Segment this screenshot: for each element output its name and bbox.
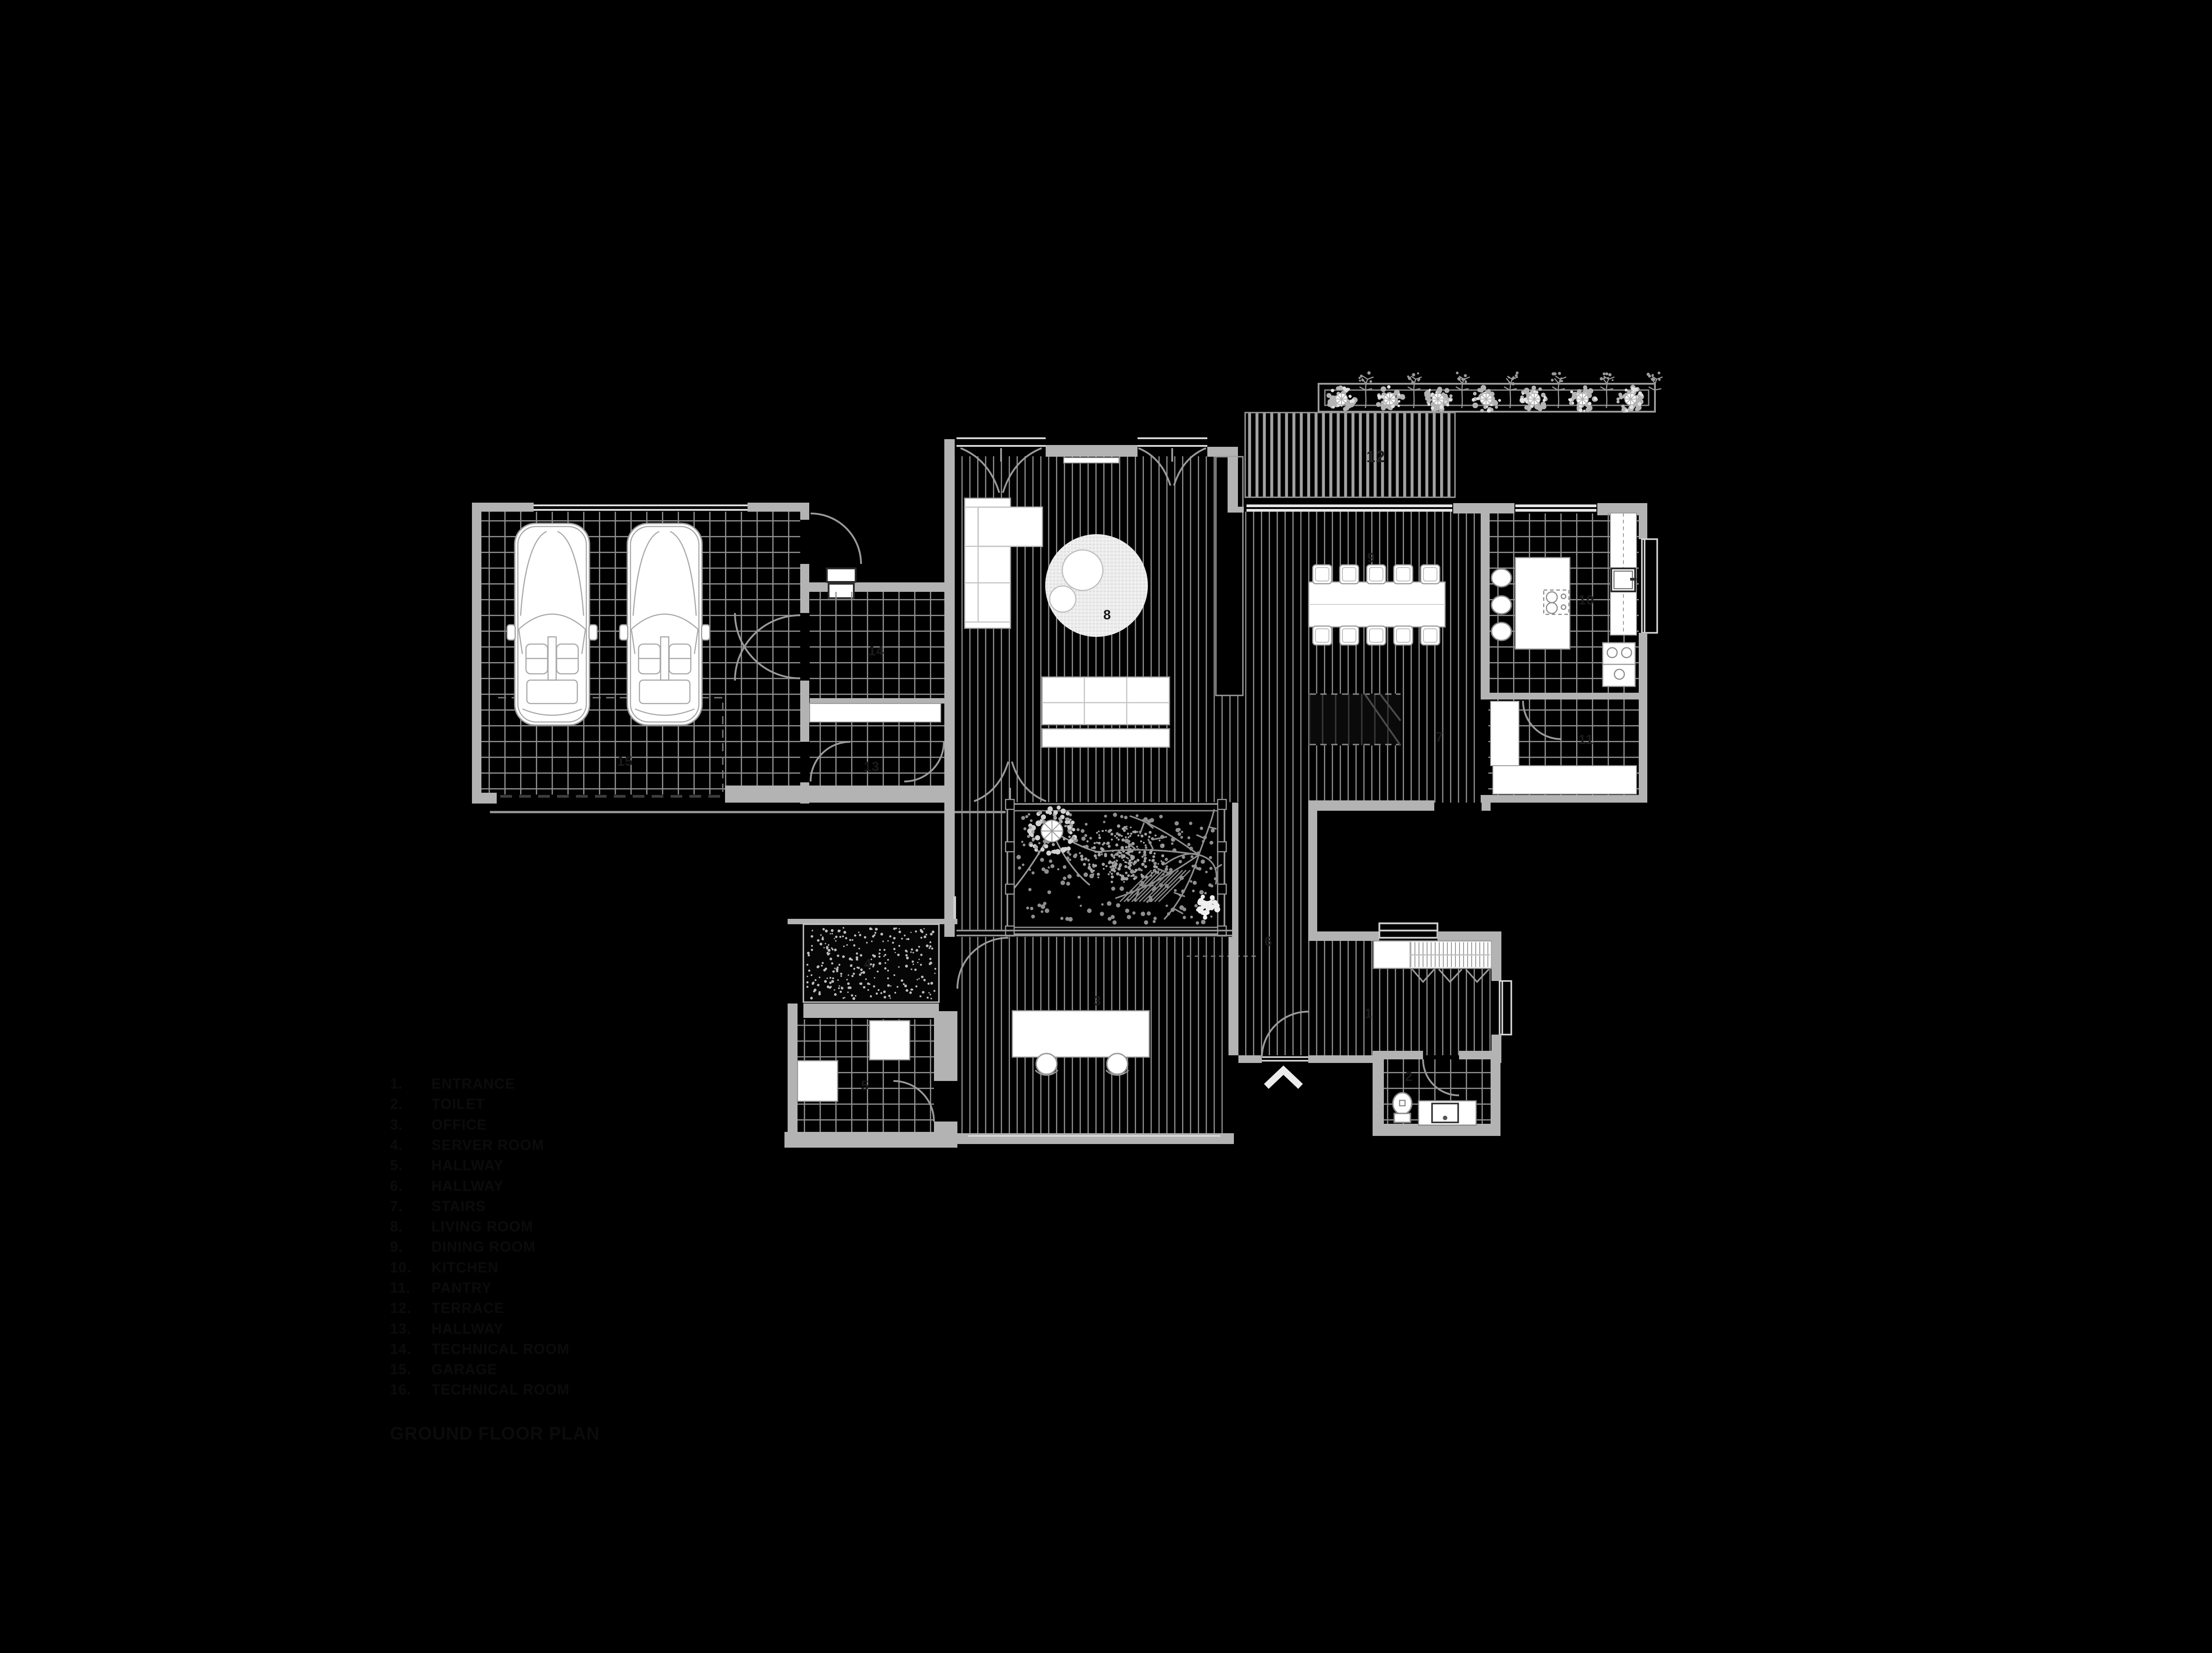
svg-text:7: 7 bbox=[1436, 730, 1444, 745]
svg-text:1.: 1. bbox=[390, 1076, 403, 1092]
svg-text:10: 10 bbox=[1578, 593, 1594, 608]
svg-text:4.: 4. bbox=[390, 1137, 403, 1153]
svg-text:5: 5 bbox=[861, 1078, 869, 1093]
svg-text:HALLWAY: HALLWAY bbox=[431, 1157, 504, 1173]
svg-text:GROUND FLOOR PLAN: GROUND FLOOR PLAN bbox=[390, 1424, 600, 1444]
svg-text:10.: 10. bbox=[390, 1259, 411, 1276]
svg-text:13.: 13. bbox=[390, 1321, 411, 1337]
svg-text:3.: 3. bbox=[390, 1117, 403, 1133]
svg-text:8.: 8. bbox=[390, 1218, 403, 1235]
svg-text:HALLWAY: HALLWAY bbox=[431, 1178, 504, 1194]
svg-text:6.: 6. bbox=[390, 1178, 403, 1194]
svg-text:2: 2 bbox=[1405, 1069, 1413, 1084]
svg-text:3: 3 bbox=[1093, 994, 1101, 1008]
svg-text:16.: 16. bbox=[390, 1381, 411, 1398]
svg-text:9: 9 bbox=[1367, 550, 1375, 565]
svg-text:11.: 11. bbox=[390, 1280, 411, 1296]
svg-text:7.: 7. bbox=[390, 1198, 403, 1214]
svg-text:5.: 5. bbox=[390, 1157, 403, 1173]
svg-text:GARAGE: GARAGE bbox=[431, 1361, 497, 1377]
svg-text:4: 4 bbox=[864, 957, 872, 972]
svg-text:ENTRANCE: ENTRANCE bbox=[431, 1076, 515, 1092]
svg-text:STAIRS: STAIRS bbox=[431, 1198, 486, 1214]
svg-text:1: 1 bbox=[1364, 1006, 1373, 1021]
svg-text:14.: 14. bbox=[390, 1341, 411, 1357]
svg-text:12: 12 bbox=[1366, 447, 1385, 466]
svg-text:6: 6 bbox=[1265, 934, 1273, 949]
svg-text:12.: 12. bbox=[390, 1300, 411, 1316]
svg-text:TECHNICAL ROOM: TECHNICAL ROOM bbox=[431, 1341, 570, 1357]
svg-text:DINING ROOM: DINING ROOM bbox=[431, 1239, 535, 1255]
svg-text:13: 13 bbox=[864, 759, 879, 774]
svg-text:HALLWAY: HALLWAY bbox=[431, 1321, 504, 1337]
svg-text:15: 15 bbox=[617, 754, 633, 769]
svg-text:2.: 2. bbox=[390, 1096, 403, 1112]
svg-text:14: 14 bbox=[868, 644, 884, 658]
svg-text:8: 8 bbox=[1103, 608, 1111, 622]
svg-text:KITCHEN: KITCHEN bbox=[431, 1259, 499, 1276]
svg-text:PANTRY: PANTRY bbox=[431, 1280, 492, 1296]
svg-text:TECHNICAL ROOM: TECHNICAL ROOM bbox=[431, 1381, 570, 1398]
svg-text:11: 11 bbox=[1578, 732, 1594, 747]
svg-text:15.: 15. bbox=[390, 1361, 411, 1377]
svg-text:TOILET: TOILET bbox=[431, 1096, 485, 1112]
svg-text:LIVING ROOM: LIVING ROOM bbox=[431, 1218, 533, 1235]
svg-text:TERRACE: TERRACE bbox=[431, 1300, 504, 1316]
svg-text:SERVER ROOM: SERVER ROOM bbox=[431, 1137, 544, 1153]
svg-text:9.: 9. bbox=[390, 1239, 403, 1255]
svg-text:OFFICE: OFFICE bbox=[431, 1117, 487, 1133]
